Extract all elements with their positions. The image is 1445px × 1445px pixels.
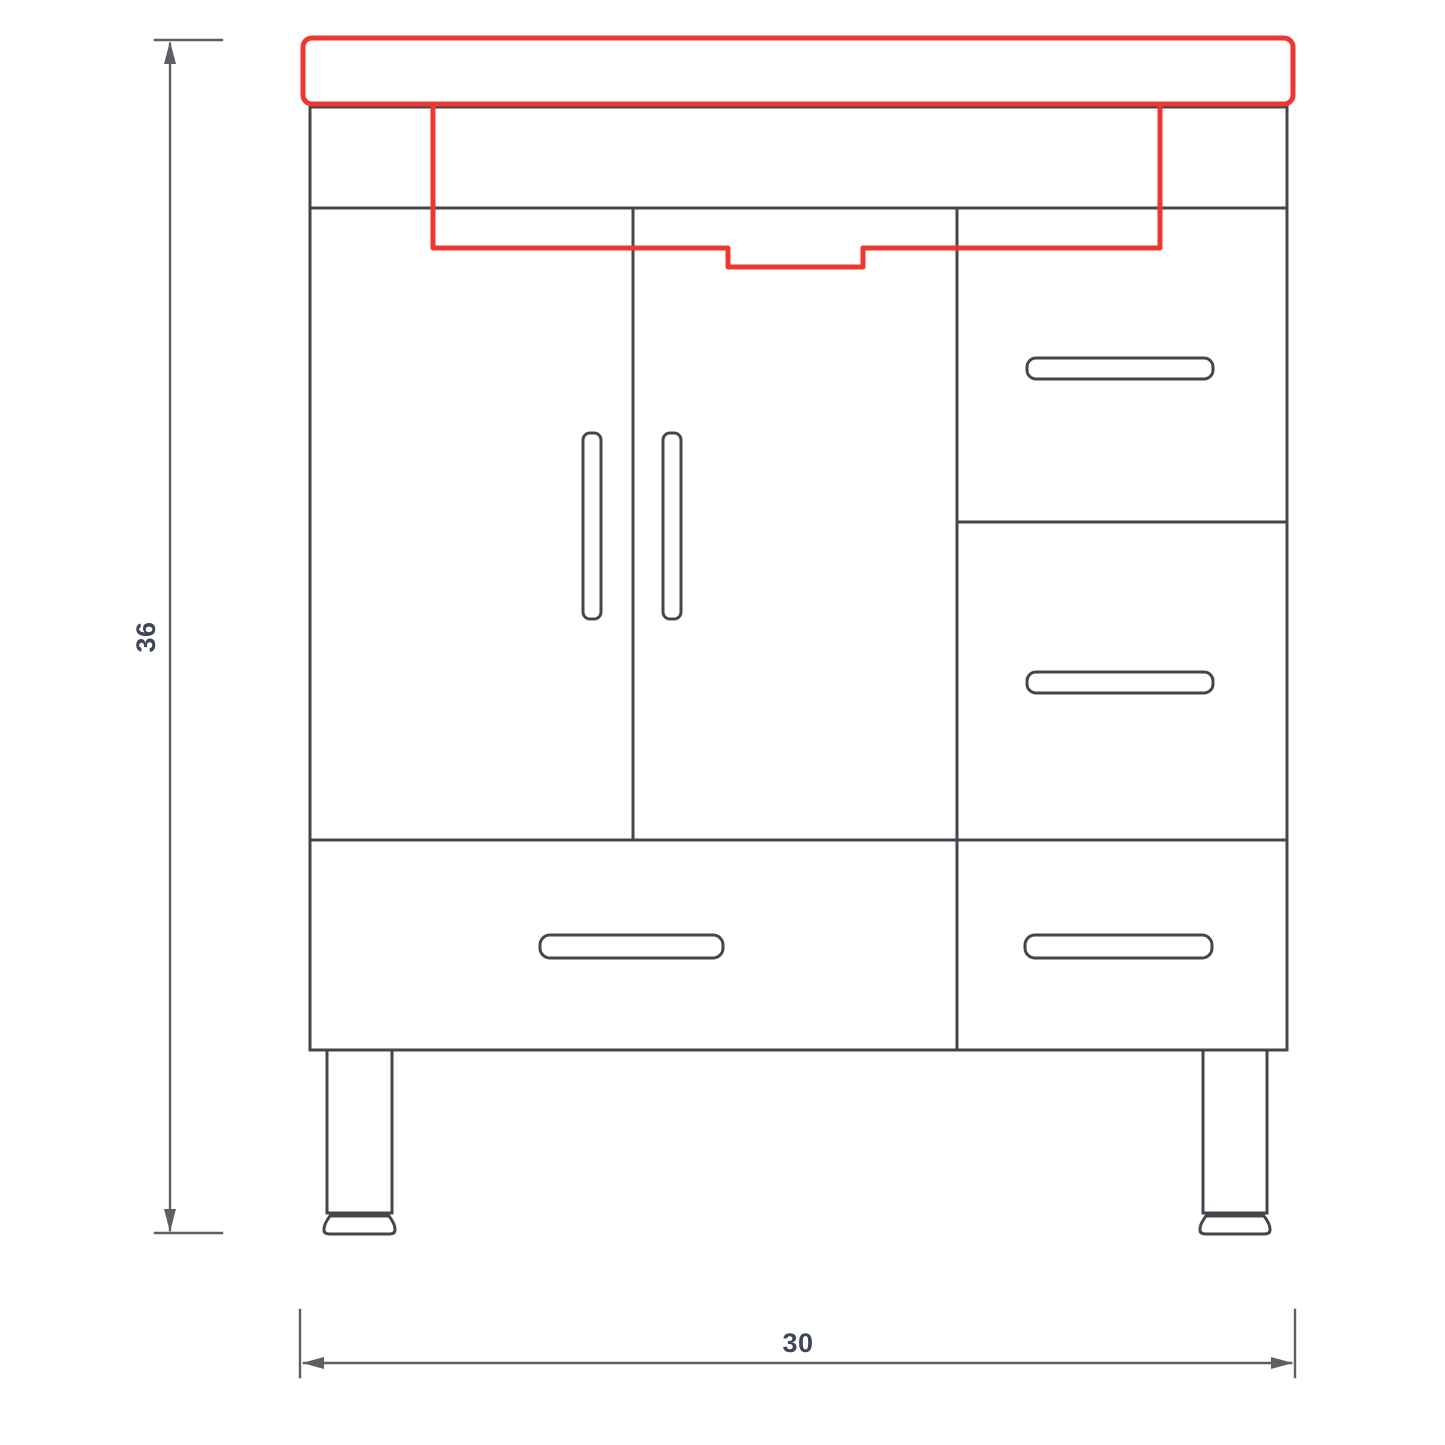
width-dimension-label: 30 xyxy=(782,1328,813,1358)
height-dimension-label: 36 xyxy=(131,621,161,652)
vanity-technical-drawing: 36 30 xyxy=(0,0,1445,1445)
drawing-canvas: 36 30 xyxy=(0,0,1445,1445)
canvas-background xyxy=(0,0,1445,1445)
